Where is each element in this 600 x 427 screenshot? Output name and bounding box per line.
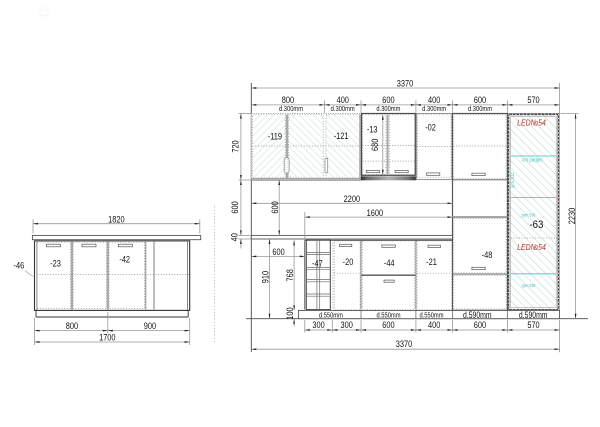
svg-text:pym 2112: pym 2112 xyxy=(509,172,515,188)
svg-text:720: 720 xyxy=(229,140,240,153)
svg-text:cm padpm: cm padpm xyxy=(522,157,543,164)
svg-text:100: 100 xyxy=(284,307,295,320)
svg-text:-46: -46 xyxy=(14,259,25,270)
svg-text:1820: 1820 xyxy=(108,214,125,225)
svg-text:910: 910 xyxy=(259,271,270,284)
svg-text:40: 40 xyxy=(228,233,239,241)
svg-text:-21: -21 xyxy=(426,256,437,267)
svg-text:400: 400 xyxy=(428,319,441,330)
svg-text:400: 400 xyxy=(337,94,350,105)
svg-text:800: 800 xyxy=(66,320,79,331)
svg-text:-48: -48 xyxy=(482,249,493,260)
svg-text:d.300mm: d.300mm xyxy=(422,106,446,114)
svg-text:600: 600 xyxy=(382,319,395,330)
svg-text:400: 400 xyxy=(428,94,441,105)
svg-text:pym 538: pym 538 xyxy=(522,283,536,289)
svg-text:-02: -02 xyxy=(425,122,436,133)
svg-text:3370: 3370 xyxy=(396,338,413,349)
svg-text:300: 300 xyxy=(340,319,353,330)
svg-text:600: 600 xyxy=(269,201,280,214)
svg-text:-121: -121 xyxy=(334,130,349,141)
svg-text:600: 600 xyxy=(474,94,487,105)
svg-text:d.300mm: d.300mm xyxy=(468,106,492,114)
svg-text:d.300mm: d.300mm xyxy=(331,106,355,114)
svg-text:1600: 1600 xyxy=(367,207,384,218)
svg-text:600: 600 xyxy=(272,246,285,257)
svg-text:600: 600 xyxy=(229,201,240,214)
svg-text:LED№54: LED№54 xyxy=(517,118,546,128)
svg-text:1700: 1700 xyxy=(99,332,116,343)
svg-text:LED№54: LED№54 xyxy=(517,242,546,252)
svg-text:-63: -63 xyxy=(529,220,543,232)
svg-text:-23: -23 xyxy=(50,258,61,269)
svg-text:570: 570 xyxy=(527,319,540,330)
svg-text:2230: 2230 xyxy=(566,208,577,225)
svg-text:3370: 3370 xyxy=(397,77,414,88)
svg-text:-42: -42 xyxy=(119,254,130,265)
svg-text:-44: -44 xyxy=(384,257,395,268)
svg-text:-119: -119 xyxy=(268,130,282,141)
svg-text:d.300mm: d.300mm xyxy=(376,106,400,114)
svg-text:-47: -47 xyxy=(312,257,323,268)
svg-text:300: 300 xyxy=(312,319,325,330)
svg-text:-13: -13 xyxy=(367,123,378,134)
svg-text:-20: -20 xyxy=(343,256,354,267)
svg-text:800: 800 xyxy=(282,94,295,105)
svg-text:pym 538: pym 538 xyxy=(522,212,536,218)
svg-text:d.300mm: d.300mm xyxy=(279,106,303,114)
svg-text:768: 768 xyxy=(284,269,295,282)
svg-text:680: 680 xyxy=(369,138,380,151)
svg-text:2200: 2200 xyxy=(344,193,361,204)
svg-text:600: 600 xyxy=(474,319,487,330)
svg-text:570: 570 xyxy=(527,94,540,105)
svg-text:600: 600 xyxy=(382,94,395,105)
svg-text:900: 900 xyxy=(144,320,157,331)
